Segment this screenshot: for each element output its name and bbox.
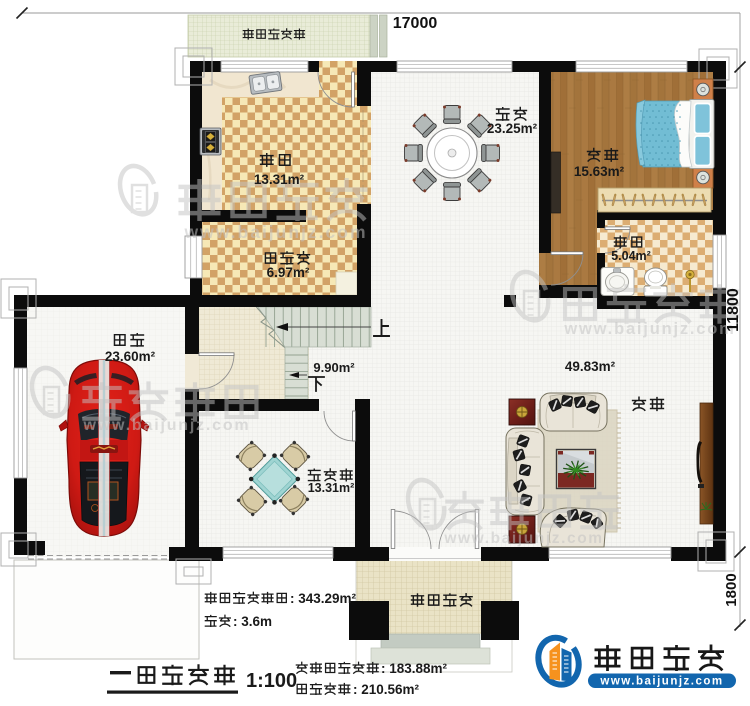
svg-text:13.31m²: 13.31m² — [254, 172, 305, 187]
svg-text:www.baijunjz.com: www.baijunjz.com — [599, 676, 723, 688]
svg-text:49.83m²: 49.83m² — [565, 359, 616, 374]
svg-text:: 343.29m²: : 343.29m² — [290, 591, 357, 606]
svg-text:: 210.56m²: : 210.56m² — [353, 682, 420, 697]
svg-text:www.baijunjz.com: www.baijunjz.com — [83, 417, 251, 434]
svg-text:9.90m²: 9.90m² — [313, 360, 355, 375]
svg-text:23.60m²: 23.60m² — [105, 349, 156, 364]
svg-text:: 3.6m: : 3.6m — [233, 614, 272, 629]
svg-text:www.baijunjz.com: www.baijunjz.com — [183, 222, 367, 242]
svg-text:www.baijunjz.com: www.baijunjz.com — [443, 530, 603, 547]
svg-text:5.04m²: 5.04m² — [611, 249, 651, 263]
svg-text:www.baijunjz.com: www.baijunjz.com — [563, 320, 735, 338]
svg-text:17000: 17000 — [393, 15, 438, 32]
svg-text:1800: 1800 — [723, 573, 740, 606]
svg-text:11800: 11800 — [725, 288, 742, 332]
svg-text:13.31m²: 13.31m² — [308, 481, 355, 495]
svg-text:6.97m²: 6.97m² — [267, 265, 310, 280]
svg-text:: 183.88m²: : 183.88m² — [381, 661, 448, 676]
svg-text:23.25m²: 23.25m² — [487, 121, 538, 136]
svg-text:1:100: 1:100 — [246, 670, 297, 692]
svg-text:15.63m²: 15.63m² — [574, 164, 625, 179]
